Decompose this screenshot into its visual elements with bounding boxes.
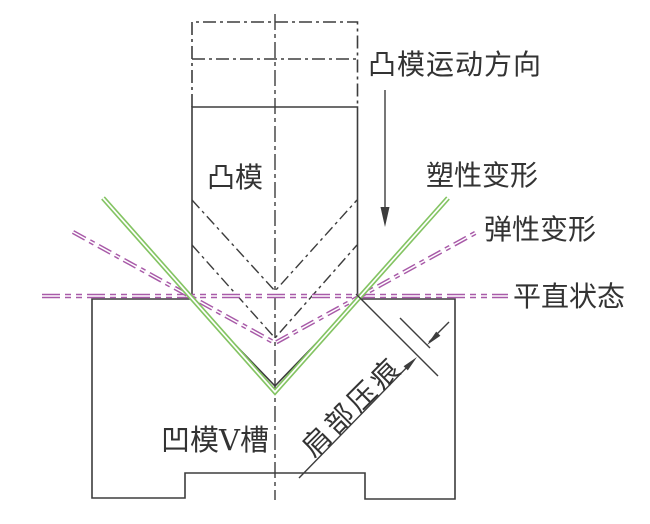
down-arrowhead-icon xyxy=(381,207,390,227)
flat-state-label: 平直状态 xyxy=(513,282,625,313)
punch-label: 凸模 xyxy=(207,163,263,194)
elastic-deformation-label: 弹性变形 xyxy=(484,215,596,246)
die-outline xyxy=(92,299,455,499)
die-v-groove-label: 凹模V槽 xyxy=(161,425,269,457)
punch-motion-direction-label: 凸模运动方向 xyxy=(368,50,542,81)
down-left-arrowhead-icon xyxy=(427,332,440,345)
plastic-deformation-label: 塑性变形 xyxy=(426,161,538,192)
punch-motion-arrow xyxy=(381,90,390,227)
v-bending-diagram: 凸模运动方向 塑性变形 弹性变形 平直状态 凸模 凹模V槽 肩部压痕 xyxy=(0,0,650,524)
